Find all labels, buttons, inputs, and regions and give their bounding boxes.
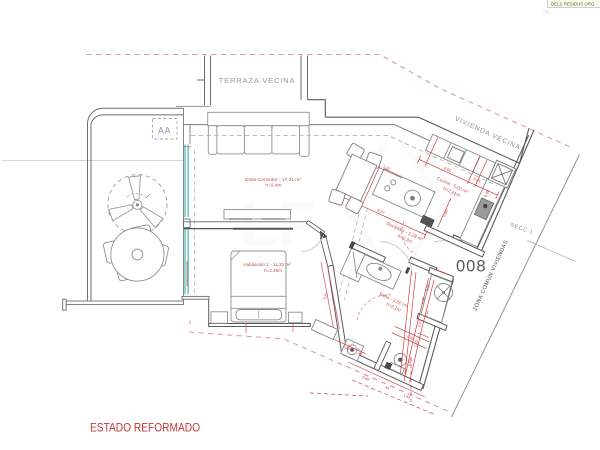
svg-text:h=2,4m: h=2,4m: [265, 183, 281, 189]
svg-text:Estar-Comedor - 17,31 m²: Estar-Comedor - 17,31 m²: [245, 177, 301, 183]
svg-text:008: 008: [456, 258, 487, 276]
svg-text:AA: AA: [158, 126, 171, 136]
svg-text:h=2,48m: h=2,48m: [264, 268, 282, 273]
svg-text:ESTADO REFORMADO: ESTADO REFORMADO: [90, 421, 200, 435]
svg-text:LF: LF: [240, 190, 316, 259]
svg-text:DELS RESIDUS ORG: DELS RESIDUS ORG: [551, 2, 595, 7]
svg-text:Habitación 1 - 11,33 m²: Habitación 1 - 11,33 m²: [243, 262, 291, 267]
svg-text:TERRAZA VECINA: TERRAZA VECINA: [219, 76, 296, 85]
